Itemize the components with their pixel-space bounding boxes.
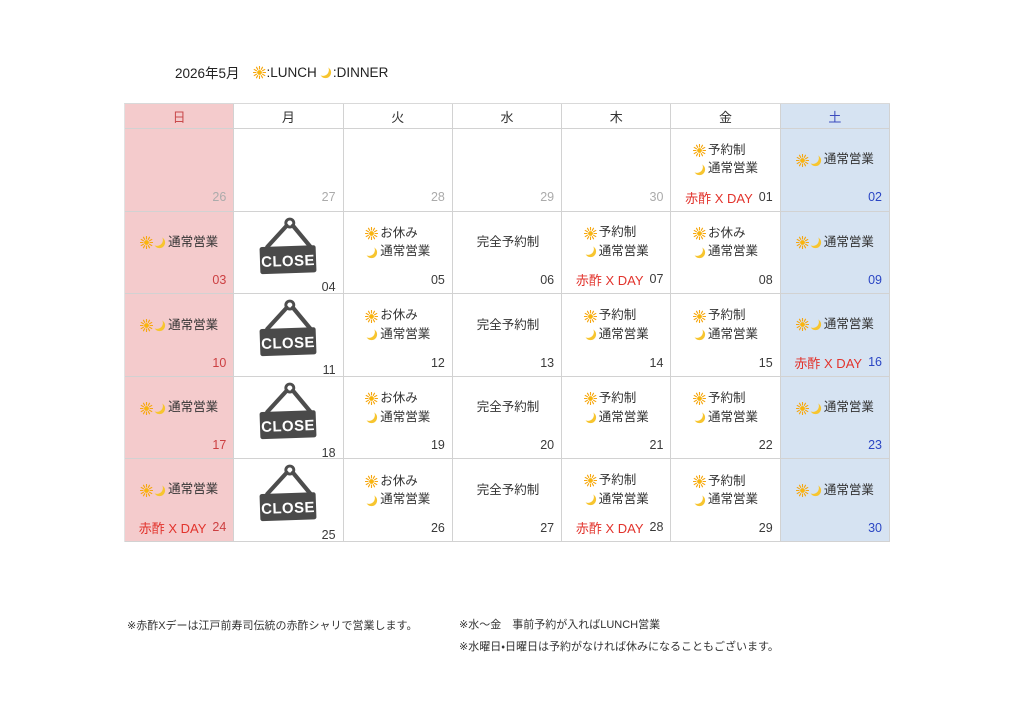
- close-sign: CLOSE: [250, 215, 326, 279]
- status-text: 通常営業: [708, 327, 758, 343]
- status-text: 通常営業: [599, 492, 649, 508]
- day-cell-04: CLOSE04: [234, 212, 343, 295]
- day-cell-13: 完全予約制13: [453, 294, 562, 377]
- status-text: 通常営業: [708, 161, 758, 177]
- sun-icon: [796, 318, 809, 331]
- status-line: 完全予約制: [475, 235, 540, 251]
- sun-icon: [693, 310, 706, 323]
- calendar-page: { "title": { "month": "2026年5月", "lunch"…: [0, 0, 1024, 724]
- day-number: 23: [868, 439, 882, 452]
- sun-icon: [796, 484, 809, 497]
- moon-icon: [584, 328, 597, 341]
- sun-icon: [365, 475, 378, 488]
- status-text: 通常営業: [824, 152, 874, 168]
- day-cell-17: 通常営業17: [125, 377, 234, 460]
- status-line: 予約制: [584, 225, 637, 241]
- day-number: 15: [759, 357, 773, 370]
- status-text: 予約制: [708, 391, 746, 407]
- weekday-header-thu: 木: [562, 104, 671, 129]
- day-cell-19: お休み通常営業19: [344, 377, 453, 460]
- status-text: 通常営業: [380, 327, 430, 343]
- day-number: 26: [431, 522, 445, 535]
- sun-icon: [365, 310, 378, 323]
- day-number: 28: [650, 521, 664, 534]
- moon-icon: [809, 402, 822, 415]
- status-text: 完全予約制: [477, 400, 540, 416]
- status-text: 通常営業: [824, 400, 874, 416]
- status-line: 通常営業: [693, 161, 758, 177]
- note-akazu: ※赤酢Xデーは江戸前寿司伝統の赤酢シャリで営業します。: [127, 617, 417, 633]
- day-number: 25: [322, 529, 336, 542]
- akazu-x-day-badge: 赤酢 X DAY: [576, 518, 644, 537]
- day-number: 29: [759, 522, 773, 535]
- day-number: 30: [650, 191, 664, 204]
- status-line: 通常営業: [365, 410, 430, 426]
- sun-icon: [693, 227, 706, 240]
- calendar-title: 2026年5月 :LUNCH :DINNER: [175, 62, 388, 82]
- day-cell-29: 予約制通常営業29: [671, 459, 780, 542]
- close-sign: CLOSE: [250, 297, 326, 361]
- status-text: 通常営業: [380, 410, 430, 426]
- close-sign: CLOSE: [250, 380, 326, 444]
- day-number: 18: [322, 447, 336, 460]
- status-text: 通常営業: [824, 235, 874, 251]
- sun-icon: [693, 392, 706, 405]
- day-cell-16: 通常営業赤酢 X DAY16: [781, 294, 890, 377]
- status-line: 通常営業: [796, 317, 874, 333]
- day-number: 22: [759, 439, 773, 452]
- moon-icon: [693, 246, 706, 259]
- day-cell-27: 完全予約制27: [453, 459, 562, 542]
- note-holiday: ※水曜日・日曜日は予約がなければ休みになることもございます。: [459, 638, 779, 654]
- svg-text:CLOSE: CLOSE: [261, 417, 315, 436]
- day-number: 05: [431, 274, 445, 287]
- status-line: 通常営業: [584, 410, 649, 426]
- status-text: 通常営業: [380, 244, 430, 260]
- day-number: 26: [212, 191, 226, 204]
- akazu-x-day-badge: 赤酢 X DAY: [576, 270, 644, 289]
- moon-icon: [153, 236, 166, 249]
- status-line: 通常営業: [796, 483, 874, 499]
- status-text: 通常営業: [168, 482, 218, 498]
- status-text: 通常営業: [168, 318, 218, 334]
- sun-icon: [140, 484, 153, 497]
- status-line: 完全予約制: [475, 318, 540, 334]
- moon-icon: [153, 319, 166, 332]
- status-text: 通常営業: [599, 327, 649, 343]
- status-text: 通常営業: [599, 244, 649, 260]
- moon-icon: [809, 236, 822, 249]
- day-cell-11: CLOSE11: [234, 294, 343, 377]
- moon-icon: [809, 318, 822, 331]
- day-number: 11: [323, 364, 336, 377]
- weekday-header-wed: 水: [453, 104, 562, 129]
- status-text: 完全予約制: [477, 483, 540, 499]
- status-text: 通常営業: [824, 483, 874, 499]
- status-line: お休み: [365, 308, 418, 324]
- moon-icon: [584, 245, 597, 258]
- sun-icon: [140, 319, 153, 332]
- day-number: 14: [650, 357, 664, 370]
- moon-icon: [809, 154, 822, 167]
- status-text: お休み: [708, 226, 746, 242]
- status-line: お休み: [365, 474, 418, 490]
- day-cell-05: お休み通常営業05: [344, 212, 453, 295]
- day-cell-21: 予約制通常営業21: [562, 377, 671, 460]
- day-cell-22: 予約制通常営業22: [671, 377, 780, 460]
- status-line: 予約制: [584, 391, 637, 407]
- day-cell-03: 通常営業03: [125, 212, 234, 295]
- status-text: 予約制: [708, 308, 746, 324]
- day-number: 17: [212, 439, 226, 452]
- status-line: 通常営業: [365, 244, 430, 260]
- day-cell-prev-27: 27: [234, 129, 343, 212]
- moon-icon: [693, 494, 706, 507]
- day-cell-23: 通常営業23: [781, 377, 890, 460]
- status-line: 通常営業: [140, 318, 218, 334]
- status-line: 通常営業: [584, 492, 649, 508]
- sun-icon: [796, 402, 809, 415]
- day-cell-prev-29: 29: [453, 129, 562, 212]
- day-number: 27: [540, 522, 554, 535]
- moon-icon: [584, 411, 597, 424]
- status-line: 通常営業: [365, 492, 430, 508]
- day-cell-18: CLOSE18: [234, 377, 343, 460]
- day-cell-10: 通常営業10: [125, 294, 234, 377]
- weekday-header-mon: 月: [234, 104, 343, 129]
- day-number: 21: [650, 439, 664, 452]
- day-number: 12: [431, 357, 445, 370]
- day-number: 28: [431, 191, 445, 204]
- day-cell-08: お休み通常営業08: [671, 212, 780, 295]
- akazu-x-day-badge: 赤酢 X DAY: [685, 188, 753, 207]
- status-line: 予約制: [693, 391, 746, 407]
- status-line: 完全予約制: [475, 483, 540, 499]
- status-text: 通常営業: [708, 410, 758, 426]
- sun-icon: [584, 392, 597, 405]
- akazu-x-day-badge: 赤酢 X DAY: [139, 518, 207, 537]
- status-text: 通常営業: [168, 235, 218, 251]
- day-cell-25: CLOSE25: [234, 459, 343, 542]
- sun-icon: [796, 154, 809, 167]
- moon-icon: [153, 484, 166, 497]
- moon-icon: [693, 163, 706, 176]
- sun-icon: [140, 402, 153, 415]
- day-number: 10: [212, 357, 226, 370]
- day-number: 03: [212, 274, 226, 287]
- status-line: 通常営業: [796, 400, 874, 416]
- title-dinner-label: :DINNER: [333, 65, 389, 80]
- day-cell-14: 予約制通常営業14: [562, 294, 671, 377]
- day-number: 08: [759, 274, 773, 287]
- title-lunch-label: :LUNCH: [267, 65, 317, 80]
- moon-icon: [319, 66, 332, 79]
- day-number: 30: [868, 522, 882, 535]
- status-line: 通常営業: [796, 152, 874, 168]
- day-cell-30: 通常営業30: [781, 459, 890, 542]
- status-text: 予約制: [708, 474, 746, 490]
- day-number: 02: [868, 191, 882, 204]
- status-text: お休み: [380, 474, 418, 490]
- status-line: 予約制: [584, 473, 637, 489]
- svg-text:CLOSE: CLOSE: [261, 499, 315, 518]
- moon-icon: [365, 246, 378, 259]
- status-line: お休み: [365, 391, 418, 407]
- moon-icon: [693, 411, 706, 424]
- day-cell-01: 予約制通常営業赤酢 X DAY01: [671, 129, 780, 212]
- day-number: 04: [322, 281, 336, 294]
- status-line: 完全予約制: [475, 400, 540, 416]
- moon-icon: [365, 411, 378, 424]
- day-number: 01: [759, 191, 773, 204]
- status-text: 通常営業: [824, 317, 874, 333]
- status-line: 通常営業: [693, 244, 758, 260]
- weekday-header-fri: 金: [671, 104, 780, 129]
- day-cell-02: 通常営業02: [781, 129, 890, 212]
- day-cell-28: 予約制通常営業赤酢 X DAY28: [562, 459, 671, 542]
- day-cell-09: 通常営業09: [781, 212, 890, 295]
- status-line: 通常営業: [693, 410, 758, 426]
- day-cell-07: 予約制通常営業赤酢 X DAY07: [562, 212, 671, 295]
- weekday-header-sat: 土: [781, 104, 890, 129]
- status-line: 通常営業: [140, 482, 218, 498]
- moon-icon: [584, 493, 597, 506]
- day-number: 24: [212, 521, 226, 534]
- weekday-header-tue: 火: [344, 104, 453, 129]
- status-line: 予約制: [584, 308, 637, 324]
- status-line: 予約制: [693, 143, 746, 159]
- title-month: 2026年5月: [175, 62, 240, 82]
- day-cell-26: お休み通常営業26: [344, 459, 453, 542]
- sun-icon: [796, 236, 809, 249]
- status-line: 通常営業: [584, 327, 649, 343]
- status-line: 通常営業: [693, 492, 758, 508]
- status-text: 通常営業: [168, 400, 218, 416]
- day-number: 20: [540, 439, 554, 452]
- status-line: お休み: [693, 226, 746, 242]
- day-number: 19: [431, 439, 445, 452]
- day-number: 29: [540, 191, 554, 204]
- moon-icon: [809, 484, 822, 497]
- sun-icon: [584, 310, 597, 323]
- sun-icon: [584, 227, 597, 240]
- day-cell-15: 予約制通常営業15: [671, 294, 780, 377]
- day-cell-06: 完全予約制06: [453, 212, 562, 295]
- day-cell-prev-28: 28: [344, 129, 453, 212]
- status-text: 通常営業: [380, 492, 430, 508]
- status-line: 通常営業: [796, 235, 874, 251]
- day-number: 27: [322, 191, 336, 204]
- status-line: 予約制: [693, 474, 746, 490]
- status-text: 予約制: [599, 225, 637, 241]
- status-text: 予約制: [708, 143, 746, 159]
- day-cell-prev-26: 26: [125, 129, 234, 212]
- status-text: 予約制: [599, 308, 637, 324]
- sun-icon: [253, 66, 266, 79]
- status-text: お休み: [380, 226, 418, 242]
- day-cell-12: お休み通常営業12: [344, 294, 453, 377]
- status-line: お休み: [365, 226, 418, 242]
- sun-icon: [693, 475, 706, 488]
- status-line: 通常営業: [693, 327, 758, 343]
- day-number: 13: [540, 357, 554, 370]
- day-number: 06: [540, 274, 554, 287]
- sun-icon: [365, 227, 378, 240]
- calendar-grid: 日月火水木金土2627282930予約制通常営業赤酢 X DAY01通常営業02…: [124, 103, 890, 542]
- day-number: 16: [868, 356, 882, 369]
- note-lunch: ※水〜金 事前予約が入ればLUNCH営業: [459, 616, 660, 632]
- status-text: 完全予約制: [477, 318, 540, 334]
- status-line: 通常営業: [584, 244, 649, 260]
- svg-text:CLOSE: CLOSE: [261, 334, 315, 353]
- moon-icon: [365, 328, 378, 341]
- moon-icon: [153, 402, 166, 415]
- sun-icon: [365, 392, 378, 405]
- status-text: お休み: [380, 308, 418, 324]
- weekday-header-sun: 日: [125, 104, 234, 129]
- sun-icon: [140, 236, 153, 249]
- sun-icon: [584, 474, 597, 487]
- close-sign: CLOSE: [250, 462, 326, 526]
- status-line: 通常営業: [140, 235, 218, 251]
- status-text: 通常営業: [708, 244, 758, 260]
- status-line: 予約制: [693, 308, 746, 324]
- day-cell-24: 通常営業赤酢 X DAY24: [125, 459, 234, 542]
- moon-icon: [693, 328, 706, 341]
- status-line: 通常営業: [365, 327, 430, 343]
- status-text: 完全予約制: [477, 235, 540, 251]
- sun-icon: [693, 144, 706, 157]
- status-text: 予約制: [599, 473, 637, 489]
- status-line: 通常営業: [140, 400, 218, 416]
- moon-icon: [365, 494, 378, 507]
- svg-text:CLOSE: CLOSE: [261, 252, 315, 271]
- day-number: 09: [868, 274, 882, 287]
- day-cell-20: 完全予約制20: [453, 377, 562, 460]
- status-text: 予約制: [599, 391, 637, 407]
- day-number: 07: [650, 273, 664, 286]
- status-text: 通常営業: [599, 410, 649, 426]
- day-cell-prev-30: 30: [562, 129, 671, 212]
- status-text: 通常営業: [708, 492, 758, 508]
- status-text: お休み: [380, 391, 418, 407]
- akazu-x-day-badge: 赤酢 X DAY: [794, 353, 862, 372]
